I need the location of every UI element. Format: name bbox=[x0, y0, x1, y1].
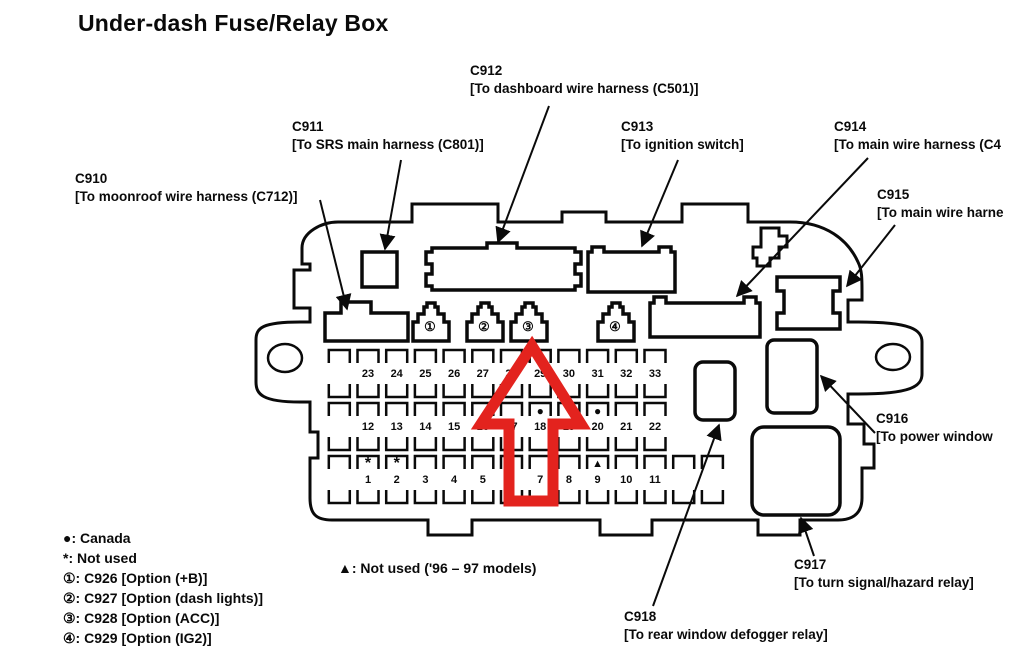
red-highlight-arrow bbox=[0, 0, 1024, 669]
red-arrow-outline bbox=[481, 346, 581, 501]
